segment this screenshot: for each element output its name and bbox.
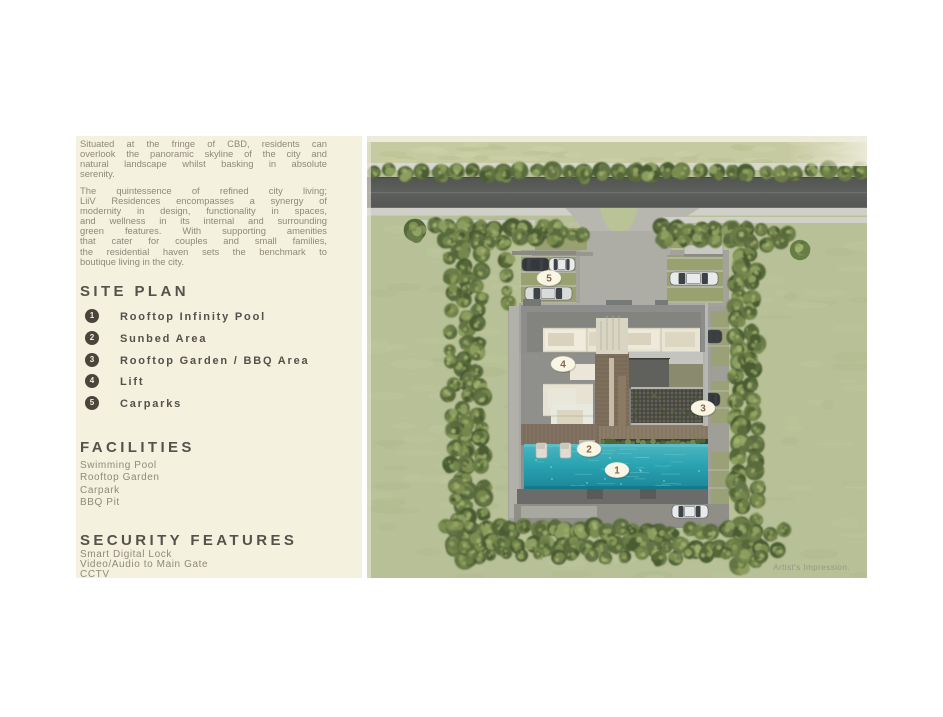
svg-text:3: 3 (700, 403, 706, 414)
svg-text:5: 5 (546, 273, 552, 284)
svg-text:Artist's Impression.: Artist's Impression. (773, 563, 850, 572)
svg-text:4: 4 (560, 359, 566, 370)
svg-text:1: 1 (614, 465, 620, 476)
svg-text:2: 2 (586, 444, 592, 455)
